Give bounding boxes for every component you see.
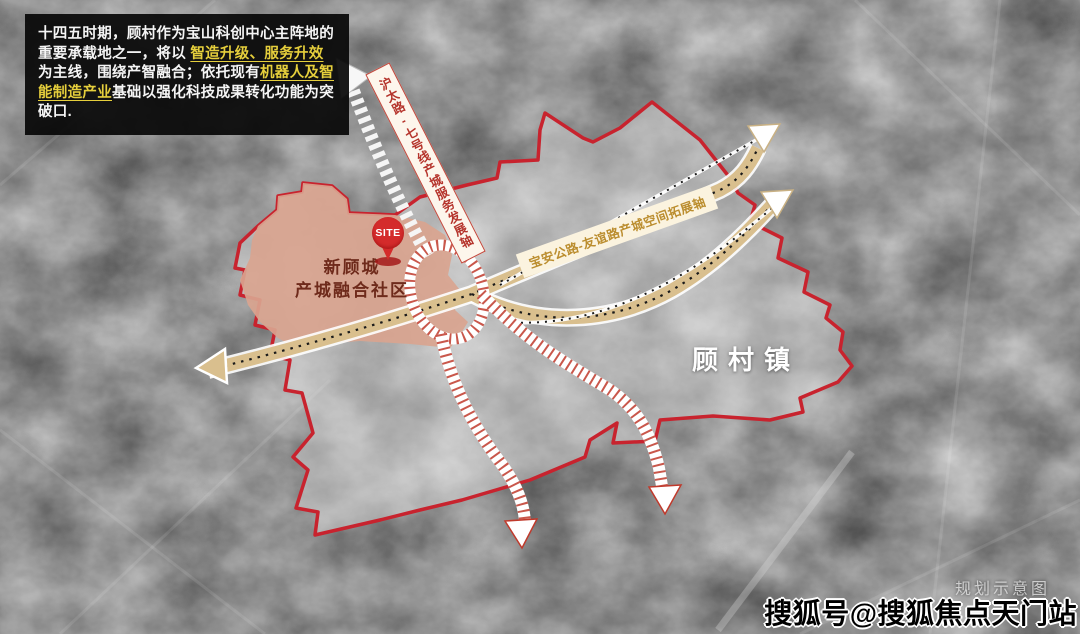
intro-text-box: 十四五时期，顾村作为宝山科创中心主阵地的重要承载地之一，将以 智造升级、服务升效… bbox=[25, 14, 349, 135]
site-marker-label: SITE bbox=[375, 227, 400, 239]
community-label-line1: 新顾城 bbox=[272, 256, 432, 279]
community-label: 新顾城 产城融合社区 bbox=[272, 256, 432, 302]
community-label-line2: 产城融合社区 bbox=[272, 279, 432, 302]
watermark: 搜狐号@搜狐焦点天门站 bbox=[764, 592, 1077, 632]
site-pin-icon: SITE bbox=[372, 217, 404, 249]
town-label: 顾村镇 bbox=[692, 340, 800, 377]
planning-map: 十四五时期，顾村作为宝山科创中心主阵地的重要承载地之一，将以 智造升级、服务升效… bbox=[0, 0, 1080, 634]
intro-text: 十四五时期，顾村作为宝山科创中心主阵地的重要承载地之一，将以 智造升级、服务升效… bbox=[38, 26, 334, 120]
site-marker: SITE bbox=[372, 217, 404, 269]
